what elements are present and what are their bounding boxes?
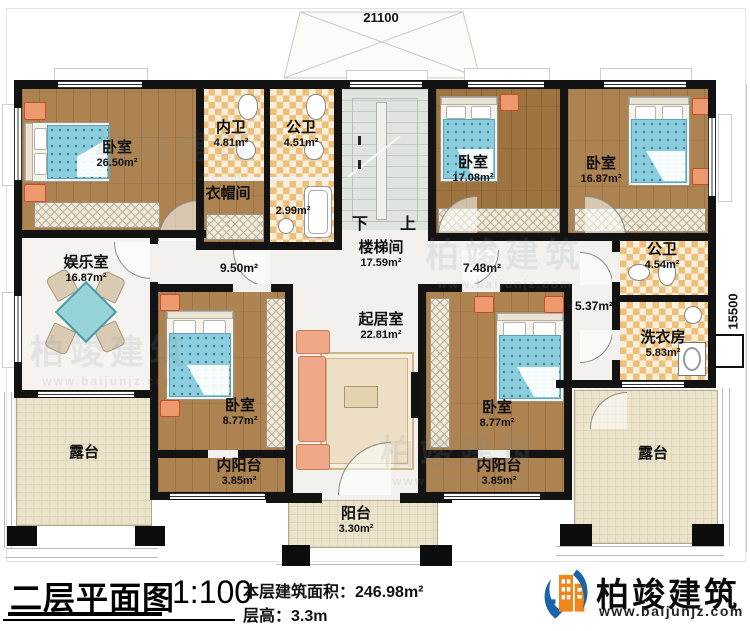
wall	[14, 230, 206, 238]
label-hall-se: 5.37m²	[575, 300, 613, 313]
door-opening	[150, 244, 158, 282]
floorplan-canvas: 21100 15500	[0, 0, 750, 570]
nightstand	[500, 94, 519, 111]
railing	[722, 388, 730, 546]
label-terrace-left: 露台	[69, 445, 99, 462]
floorplan-page: { "plan": { "dim_top": "21100", "dim_rig…	[0, 0, 750, 631]
nightstand	[160, 294, 180, 311]
label-living: 起居室 22.81m²	[358, 312, 403, 341]
stair-up-label: 上	[400, 210, 416, 234]
label-public-bath-top: 公卫 4.51m²	[284, 120, 319, 149]
door-opening	[462, 284, 500, 292]
column	[692, 524, 724, 546]
wall	[150, 450, 208, 458]
door-opening	[612, 252, 620, 282]
room-area: 3.85m²	[476, 475, 521, 487]
room-area: 5.83m²	[640, 347, 685, 359]
room-area: 5.37m²	[575, 300, 613, 313]
room-name: 起居室	[358, 312, 403, 329]
window	[604, 81, 686, 88]
label-bedroom-mid-left: 卧室 8.77m²	[223, 398, 258, 427]
nightstand	[24, 184, 46, 202]
room-area: 4.51m²	[284, 137, 319, 149]
nightstand	[160, 400, 180, 417]
label-bedroom-mid-right: 卧室 8.77m²	[480, 400, 515, 429]
room-area: 22.81m²	[358, 329, 403, 341]
title-underline	[8, 612, 162, 616]
room-area: 9.50m²	[220, 262, 258, 275]
room-area: 4.54m²	[645, 259, 680, 271]
toilet	[238, 94, 258, 120]
pillow	[173, 320, 196, 334]
window	[14, 296, 22, 362]
railing	[4, 392, 12, 548]
door-opening	[233, 284, 271, 292]
room-name: 内卫	[214, 120, 249, 137]
wall	[560, 89, 568, 241]
label-entertainment: 娱乐室 16.87m²	[63, 255, 108, 284]
headboard	[441, 97, 497, 105]
duvet	[169, 365, 229, 395]
window-sill	[718, 114, 732, 202]
label-stairwell: 楼梯间 17.59m²	[358, 240, 403, 269]
column	[560, 524, 592, 546]
duvet	[631, 151, 685, 181]
floor-area-text: 本层建筑面积：246.98m²	[243, 578, 424, 602]
sink	[278, 218, 294, 234]
railing	[556, 546, 724, 556]
nightstand	[544, 296, 564, 313]
window	[444, 493, 540, 499]
pillow	[34, 128, 47, 150]
stair-down-label: 下	[352, 210, 368, 234]
label-terrace-right: 露台	[638, 446, 668, 463]
room-name: 卧室	[453, 155, 494, 172]
armchair	[296, 444, 330, 470]
wall	[285, 292, 293, 500]
wall	[196, 89, 204, 250]
dimension-line-right	[746, 84, 747, 552]
wall	[334, 89, 342, 250]
room-area: 7.48m²	[463, 262, 501, 275]
pillow	[503, 322, 526, 336]
headboard	[497, 313, 563, 321]
headboard	[25, 123, 33, 181]
wall	[264, 89, 270, 247]
window	[622, 381, 684, 387]
duvet	[499, 367, 559, 397]
floor-height-text: 层高：3.3m	[243, 602, 327, 626]
pillow	[662, 106, 683, 120]
column	[7, 526, 37, 546]
drawing-scale: 1:100	[172, 574, 252, 611]
label-balcony: 阳台 3.30m²	[339, 506, 374, 535]
wall	[266, 493, 322, 503]
room-name: 阳台	[339, 506, 374, 523]
sofa	[298, 356, 326, 442]
room-area: 17.08m²	[453, 172, 494, 184]
room-area: 2.99m²	[276, 205, 311, 217]
sink	[684, 306, 702, 324]
brand-website: www.baijunjz.com	[599, 603, 744, 619]
room-name: 卧室	[97, 140, 138, 157]
pillow	[635, 106, 656, 120]
window	[350, 81, 422, 88]
wall	[150, 284, 293, 292]
room-area: 8.77m²	[480, 417, 515, 429]
window	[708, 118, 716, 196]
wall	[428, 233, 716, 241]
label-inner-balcony-left: 内阳台 3.85m²	[216, 458, 261, 487]
headboard	[629, 97, 689, 105]
room-area: 26.50m²	[97, 157, 138, 169]
room-area: 17.59m²	[358, 257, 403, 269]
label-bedroom-top-left: 卧室 26.50m²	[97, 140, 138, 169]
window	[38, 391, 134, 397]
room-name: 洗衣房	[640, 330, 685, 347]
label-bedroom-top-middle: 卧室 17.08m²	[453, 155, 494, 184]
armchair	[296, 330, 330, 354]
label-laundry: 洗衣房 5.83m²	[640, 330, 685, 359]
stair-arrow-tick	[358, 136, 361, 145]
wall	[418, 450, 478, 458]
room-area: 4.81m²	[214, 137, 249, 149]
pillow	[471, 106, 491, 119]
label-inner-bath: 内卫 4.81m²	[214, 120, 249, 149]
wardrobe	[266, 298, 286, 448]
pillow	[446, 106, 466, 119]
headboard	[167, 311, 233, 319]
label-bedroom-top-right: 卧室 16.87m²	[581, 156, 622, 185]
window	[468, 81, 544, 88]
wall	[428, 89, 436, 233]
label-public-bath-right: 公卫 4.54m²	[645, 242, 680, 271]
column	[420, 545, 452, 566]
wall	[418, 292, 426, 500]
pillow	[203, 320, 226, 334]
pillow	[533, 322, 556, 336]
room-name: 娱乐室	[63, 255, 108, 272]
label-inner-balcony-right: 内阳台 3.85m²	[476, 458, 521, 487]
room-area: 16.87m²	[63, 272, 108, 284]
dimension-top: 21100	[363, 10, 398, 25]
room-name: 公卫	[284, 120, 319, 137]
room-area: 8.77m²	[223, 415, 258, 427]
pillow	[34, 153, 47, 175]
wall	[564, 292, 572, 500]
wall	[612, 295, 716, 302]
room-name: 内阳台	[476, 458, 521, 475]
stair-stringer	[376, 102, 387, 220]
railing	[6, 548, 158, 558]
brand-logo-icon	[538, 564, 594, 631]
tv	[411, 372, 418, 418]
room-name: 内阳台	[216, 458, 261, 475]
bed	[496, 312, 564, 402]
room-area: 16.87m²	[581, 173, 622, 185]
room-name: 公卫	[645, 242, 680, 259]
room-name: 楼梯间	[358, 240, 403, 257]
room-name: 露台	[69, 445, 99, 462]
nightstand	[474, 296, 494, 313]
bed	[628, 96, 690, 186]
room-name: 卧室	[223, 398, 258, 415]
room-name: 衣帽间	[205, 186, 250, 203]
nightstand	[24, 102, 46, 120]
stair-arrow-tick	[358, 160, 361, 169]
label-hall-right: 7.48m²	[463, 262, 501, 275]
label-cloakroom: 衣帽间	[205, 186, 250, 203]
room-name: 卧室	[581, 156, 622, 173]
room-name: 卧室	[480, 400, 515, 417]
wardrobe	[430, 298, 450, 448]
window	[14, 108, 22, 180]
coffee-table	[344, 386, 378, 408]
room-area: 3.30m²	[339, 523, 374, 535]
title-underline-thin	[3, 619, 235, 621]
toilet	[306, 94, 326, 120]
window	[170, 493, 265, 499]
column	[135, 526, 165, 546]
door-opening	[612, 330, 620, 360]
room-area: 3.85m²	[216, 475, 261, 487]
title-block: 二层平面图 1:100 本层建筑面积：246.98m² 层高：3.3m 柏竣建筑…	[0, 570, 750, 631]
wardrobe	[34, 202, 160, 228]
label-hall-left: 9.50m²	[220, 262, 258, 275]
column	[282, 545, 310, 566]
bed	[166, 310, 234, 400]
dimension-right: 15500	[726, 277, 741, 347]
cloakroom-shelving	[206, 214, 264, 240]
room-name: 露台	[638, 446, 668, 463]
window	[58, 81, 142, 88]
label-shower-area: 2.99m²	[276, 205, 311, 217]
